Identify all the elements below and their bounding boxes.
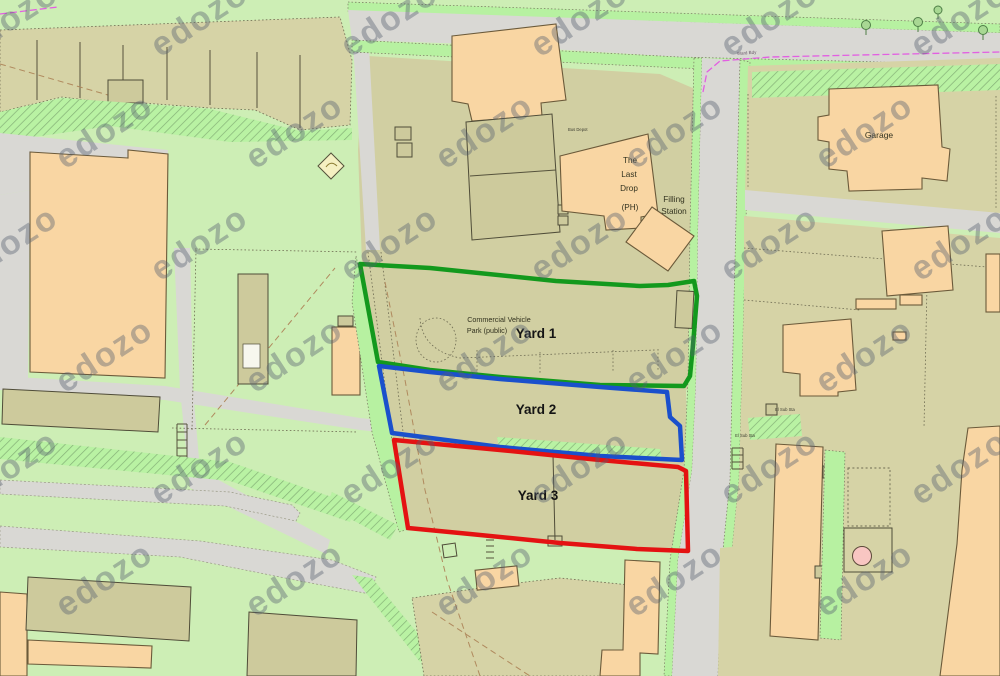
- filling-station-label-1: Filling: [663, 195, 685, 204]
- last-drop-label-4: (PH): [622, 203, 639, 212]
- bus-depot-label: Bus Depot: [568, 127, 588, 132]
- el-sub-sta-label-2: El Sub Sta: [735, 433, 755, 438]
- last-drop-label-3: Drop: [620, 184, 638, 193]
- map-canvas: Commercial Vehicle Park (public) Yard 1 …: [0, 0, 1000, 676]
- yard2-label: Yard 2: [516, 402, 557, 417]
- filling-station-label-2: Station: [661, 207, 687, 216]
- el-sub-sta-label-1: El Sub Sta: [775, 407, 795, 412]
- site-plan-map: Commercial Vehicle Park (public) Yard 1 …: [0, 0, 1000, 676]
- building-long-west: [2, 389, 160, 432]
